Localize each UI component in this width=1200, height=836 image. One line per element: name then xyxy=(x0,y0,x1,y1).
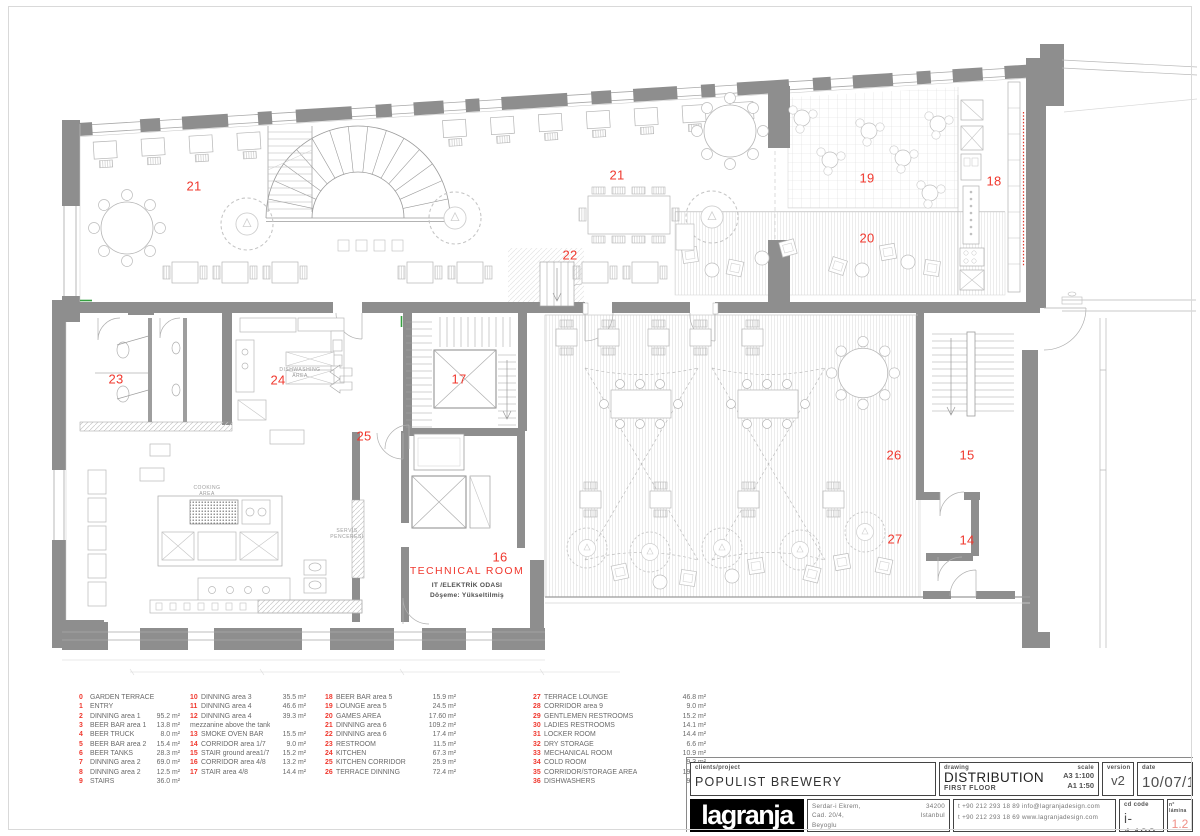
legend-room-area: 95.2 m² xyxy=(153,712,180,721)
legend-room-number: 15 xyxy=(190,749,201,758)
legend-room-number: 0 xyxy=(79,693,90,702)
legend-room-number: 24 xyxy=(325,749,336,758)
legend-room-name: DINNING area 3 xyxy=(201,693,252,702)
legend-room-name: DINNING area 6 xyxy=(336,730,387,739)
legend-room-area: 12.5 m² xyxy=(153,768,180,777)
stair-22 xyxy=(540,262,574,306)
lamina-value: 1.2 xyxy=(1169,817,1191,831)
legend-room-number: 16 xyxy=(190,758,201,767)
legend-row: 30LADIES RESTROOMS14.1 m² xyxy=(533,721,706,730)
legend-room-area: 11.5 m² xyxy=(429,740,456,749)
legend-row: 6BEER TANKS28.3 m² xyxy=(79,749,180,758)
legend-room-area: 14.4 m² xyxy=(279,768,306,777)
titleblock-date-cell: date 10/07/15 xyxy=(1137,762,1193,796)
version-label: version xyxy=(1107,765,1129,771)
restroom-fixtures xyxy=(95,318,187,422)
legend-room-number: 20 xyxy=(325,712,336,721)
legend-room-name: ENTRY xyxy=(90,702,113,711)
legend-row: 32DRY STORAGE6.6 m² xyxy=(533,740,706,749)
legend-room-number: 25 xyxy=(325,758,336,767)
legend-room-area: 36.0 m² xyxy=(153,777,180,786)
address-right: 34200 Istanbul xyxy=(921,802,945,821)
legend-room-number: 13 xyxy=(190,730,201,739)
legend-column-3: 27TERRACE LOUNGE46.8 m²28CORRIDOR area 9… xyxy=(533,693,706,786)
legend-room-number: 21 xyxy=(325,721,336,730)
legend-room-area: 13.2 m² xyxy=(279,758,306,767)
legend-room-name: BEER BAR area 5 xyxy=(336,693,392,702)
legend-row: 27TERRACE LOUNGE46.8 m² xyxy=(533,693,706,702)
legend-room-area: 25.9 m² xyxy=(429,758,456,767)
titleblock-lamina-cell: n° lámina 1.2 xyxy=(1167,799,1193,832)
legend-room-number: 7 xyxy=(79,758,90,767)
legend-room-area: 39.3 m² xyxy=(279,712,306,721)
legend-room-name: TERRACE DINNING xyxy=(336,768,400,777)
legend-room-number: 14 xyxy=(190,740,201,749)
legend-row: 8DINNING area 212.5 m² xyxy=(79,768,180,777)
project-name: POPULIST BREWERY xyxy=(695,775,931,789)
legend-room-area: 15.2 m² xyxy=(279,749,306,758)
lagranja-logo: lagranja xyxy=(690,799,804,832)
legend-room-number: 28 xyxy=(533,702,544,711)
fan-staircase xyxy=(266,126,450,251)
legend-row: 7DINNING area 269.0 m² xyxy=(79,758,180,767)
legend-room-number: 26 xyxy=(325,768,336,777)
legend-room-number: 4 xyxy=(79,730,90,739)
legend-room-name: SMOKE OVEN BAR xyxy=(201,730,263,739)
hatched-wall xyxy=(80,422,232,431)
legend-row: mezzanine above the tank xyxy=(190,721,306,730)
legend-room-number: 23 xyxy=(325,740,336,749)
lamina-label: n° lámina xyxy=(1169,802,1191,814)
legend-room-number: 27 xyxy=(533,693,544,702)
legend-room-number: 18 xyxy=(325,693,336,702)
legend-room-number: 31 xyxy=(533,730,544,739)
address-line3: Beyoglu xyxy=(812,821,945,830)
legend-room-area: 15.4 m² xyxy=(153,740,180,749)
legend-row: 1ENTRY xyxy=(79,702,180,711)
legend-room-name: GARDEN TERRACE xyxy=(90,693,154,702)
stair-15 xyxy=(932,332,1014,416)
legend-room-area: 35.5 m² xyxy=(279,693,306,702)
legend-room-name: CORRIDOR area 9 xyxy=(544,702,603,711)
legend-room-number: 10 xyxy=(190,693,201,702)
legend-room-name: DISHWASHERS xyxy=(544,777,595,786)
legend-room-area: 14.4 m² xyxy=(679,730,706,739)
legend-room-area: 28.3 m² xyxy=(153,749,180,758)
legend-room-number: 29 xyxy=(533,712,544,721)
legend-row: 29GENTLEMEN RESTROOMS15.2 m² xyxy=(533,712,706,721)
legend-room-area: 15.5 m² xyxy=(279,730,306,739)
legend-room-name: mezzanine above the tank xyxy=(190,721,270,730)
legend-room-area: 15.2 m² xyxy=(679,712,706,721)
legend-room-area: 46.8 m² xyxy=(679,693,706,702)
scale-a1: A1 1:50 xyxy=(1063,781,1094,791)
legend-room-number: 8 xyxy=(79,768,90,777)
legend-room-area: 24.5 m² xyxy=(429,702,456,711)
legend-room-area: 109.2 m² xyxy=(425,721,456,730)
legend-row: 2DINNING area 195.2 m² xyxy=(79,712,180,721)
address-city: Istanbul xyxy=(921,811,945,820)
legend-room-area: 6.6 m² xyxy=(682,740,706,749)
legend-row: 33MECHANICAL ROOM10.9 m² xyxy=(533,749,706,758)
legend-room-number: 3 xyxy=(79,721,90,730)
legend-room-area: 69.0 m² xyxy=(153,758,180,767)
legend-room-name: DINNING area 4 xyxy=(201,712,252,721)
legend-room-area: 8.0 m² xyxy=(156,730,180,739)
titleblock-drawing-cell: drawing DISTRIBUTION FIRST FLOOR scale A… xyxy=(939,762,1099,796)
legend-room-name: BEER TANKS xyxy=(90,749,133,758)
legend-column-2: 18BEER BAR area 515.9 m²19LOUNGE area 52… xyxy=(325,693,456,777)
legend-row: 20GAMES AREA17.60 m² xyxy=(325,712,456,721)
titleblock-address-cell: Serdar-i Ekrem, Cad. 20/4, Beyoglu 34200… xyxy=(807,799,950,832)
version-value: v2 xyxy=(1107,773,1129,788)
legend-room-area: 67.3 m² xyxy=(429,749,456,758)
legend-row: 18BEER BAR area 515.9 m² xyxy=(325,693,456,702)
legend-room-number: 35 xyxy=(533,768,544,777)
legend-room-number: 11 xyxy=(190,702,201,711)
titleblock-version-cell: version v2 xyxy=(1102,762,1134,796)
legend-row: 17STAIR area 4/814.4 m² xyxy=(190,768,306,777)
legend-column-1: 10DINNING area 335.5 m²11DINNING area 44… xyxy=(190,693,306,777)
clients-label: clients/project xyxy=(695,765,931,771)
legend-row: 23RESTROOM11.5 m² xyxy=(325,740,456,749)
legend-row: 0GARDEN TERRACE xyxy=(79,693,180,702)
legend-room-number: 34 xyxy=(533,758,544,767)
legend-room-name: LOCKER ROOM xyxy=(544,730,596,739)
legend-column-0: 0GARDEN TERRACE1ENTRY2DINNING area 195.2… xyxy=(79,693,180,786)
legend-row: 12DINNING area 439.3 m² xyxy=(190,712,306,721)
legend-room-number: 36 xyxy=(533,777,544,786)
legend-room-number: 12 xyxy=(190,712,201,721)
legend-room-area: 9.0 m² xyxy=(282,740,306,749)
legend-room-name: STAIR ground area1/7 xyxy=(201,749,269,758)
legend-room-area: 9.0 m² xyxy=(682,702,706,711)
legend-room-name: DRY STORAGE xyxy=(544,740,594,749)
legend-room-name: BEER BAR area 1 xyxy=(90,721,146,730)
legend-row: 19LOUNGE area 524.5 m² xyxy=(325,702,456,711)
titleblock-client-cell: clients/project POPULIST BREWERY xyxy=(690,762,936,796)
code-label: cd code xyxy=(1124,802,1159,808)
legend-row: 21DINNING area 6109.2 m² xyxy=(325,721,456,730)
legend-room-area: 72.4 m² xyxy=(429,768,456,777)
legend-room-name: KITCHEN xyxy=(336,749,366,758)
legend-room-name: BEER TRUCK xyxy=(90,730,134,739)
legend-room-name: DINNING area 2 xyxy=(90,758,141,767)
legend-row: 14CORRIDOR area 1/79.0 m² xyxy=(190,740,306,749)
legend-room-area: 17.60 m² xyxy=(425,712,456,721)
legend-row: 36DISHWASHERS9.5 m² xyxy=(533,777,706,786)
legend-row: 31LOCKER ROOM14.4 m² xyxy=(533,730,706,739)
service-window-wall xyxy=(352,500,364,578)
legend-room-name: DINNING area 4 xyxy=(201,702,252,711)
legend-row: 25KITCHEN CORRIDOR25.9 m² xyxy=(325,758,456,767)
legend-row: 4BEER TRUCK8.0 m² xyxy=(79,730,180,739)
address-zip: 34200 xyxy=(921,802,945,811)
legend-room-name: GAMES AREA xyxy=(336,712,381,721)
legend-row: 24KITCHEN67.3 m² xyxy=(325,749,456,758)
legend-room-name: GENTLEMEN RESTROOMS xyxy=(544,712,633,721)
titleblock-code-cell: cd code i-1403 xyxy=(1119,799,1164,832)
technical-room-caption: TECHNICAL ROOM IT /ELEKTRİK ODASI Döşeme… xyxy=(410,565,524,601)
legend-room-name: CORRIDOR area 1/7 xyxy=(201,740,266,749)
legend-room-number: 5 xyxy=(79,740,90,749)
legend-room-name: RESTROOM xyxy=(336,740,376,749)
legend-room-number: 22 xyxy=(325,730,336,739)
title-block: clients/project POPULIST BREWERY drawing… xyxy=(686,757,1193,832)
phone-line2: t +90 212 293 18 69 www.lagranjadesign.c… xyxy=(958,813,1111,824)
legend-row: 28CORRIDOR area 99.0 m² xyxy=(533,702,706,711)
legend-room-name: STAIR area 4/8 xyxy=(201,768,248,777)
technical-room-line1: IT /ELEKTRİK ODASI xyxy=(410,581,524,591)
context-lines xyxy=(1062,60,1197,648)
titleblock-contact-cell: t +90 212 293 18 89 info@lagranjadesign.… xyxy=(953,799,1116,832)
legend-room-number: 9 xyxy=(79,777,90,786)
logo-text: lagranja xyxy=(701,800,793,831)
legend-room-name: MECHANICAL ROOM xyxy=(544,749,612,758)
legend-room-name: LOUNGE area 5 xyxy=(336,702,387,711)
legend-row: 10DINNING area 335.5 m² xyxy=(190,693,306,702)
legend-room-area: 46.6 m² xyxy=(279,702,306,711)
legend-row: 16CORRIDOR area 4/813.2 m² xyxy=(190,758,306,767)
legend-row: 34COLD ROOM9.3 m² xyxy=(533,758,706,767)
legend-row: 11DINNING area 446.6 m² xyxy=(190,702,306,711)
legend-room-name: BEER BAR area 2 xyxy=(90,740,146,749)
date-value: 10/07/15 xyxy=(1142,774,1188,791)
code-value: i-1403 xyxy=(1124,811,1159,832)
legend-room-number: 30 xyxy=(533,721,544,730)
stair-17-elevator xyxy=(406,317,516,427)
legend-row: 9STAIRS36.0 m² xyxy=(79,777,180,786)
phone-line1: t +90 212 293 18 89 info@lagranjadesign.… xyxy=(958,802,1111,813)
legend-room-number: 1 xyxy=(79,702,90,711)
legend-room-name: CORRIDOR area 4/8 xyxy=(201,758,266,767)
legend-room-number: 17 xyxy=(190,768,201,777)
drawing-sheet: 212119182022232417252615271416DISHWASHIN… xyxy=(0,0,1200,836)
scale-a3: A3 1:100 xyxy=(1063,771,1094,781)
legend-room-number: 2 xyxy=(79,712,90,721)
legend-room-name: TERRACE LOUNGE xyxy=(544,693,608,702)
legend-room-area: 17.4 m² xyxy=(429,730,456,739)
legend-room-area: 14.1 m² xyxy=(679,721,706,730)
legend-room-name: LADIES RESTROOMS xyxy=(544,721,615,730)
legend-room-name: KITCHEN CORRIDOR xyxy=(336,758,406,767)
legend-room-name: DINNING area 1 xyxy=(90,712,141,721)
technical-room-title: TECHNICAL ROOM xyxy=(410,565,524,577)
legend-room-name: STAIRS xyxy=(90,777,114,786)
scale-block: scale A3 1:100 A1 1:50 xyxy=(1063,765,1094,791)
legend-row: 22DINNING area 617.4 m² xyxy=(325,730,456,739)
legend-room-name: DINNING area 6 xyxy=(336,721,387,730)
legend-room-name: CORRIDOR/STORAGE AREA xyxy=(544,768,637,777)
legend-row: 15STAIR ground area1/715.2 m² xyxy=(190,749,306,758)
legend-room-number: 6 xyxy=(79,749,90,758)
legend-room-number: 32 xyxy=(533,740,544,749)
legend-row: 35CORRIDOR/STORAGE AREA19.9 m² xyxy=(533,768,706,777)
legend-room-area: 13.8 m² xyxy=(153,721,180,730)
legend-room-area: 15.9 m² xyxy=(429,693,456,702)
legend-row: 26TERRACE DINNING72.4 m² xyxy=(325,768,456,777)
legend-room-number: 33 xyxy=(533,749,544,758)
legend-room-name: COLD ROOM xyxy=(544,758,587,767)
legend-row: 3BEER BAR area 113.8 m² xyxy=(79,721,180,730)
technical-room-equipment xyxy=(412,434,490,528)
legend-room-number: 19 xyxy=(325,702,336,711)
legend-row: 5BEER BAR area 215.4 m² xyxy=(79,740,180,749)
legend-row: 13SMOKE OVEN BAR15.5 m² xyxy=(190,730,306,739)
date-label: date xyxy=(1142,765,1188,771)
technical-room-line2: Döşeme: Yükseltilmiş xyxy=(410,591,524,601)
legend-room-name: DINNING area 2 xyxy=(90,768,141,777)
